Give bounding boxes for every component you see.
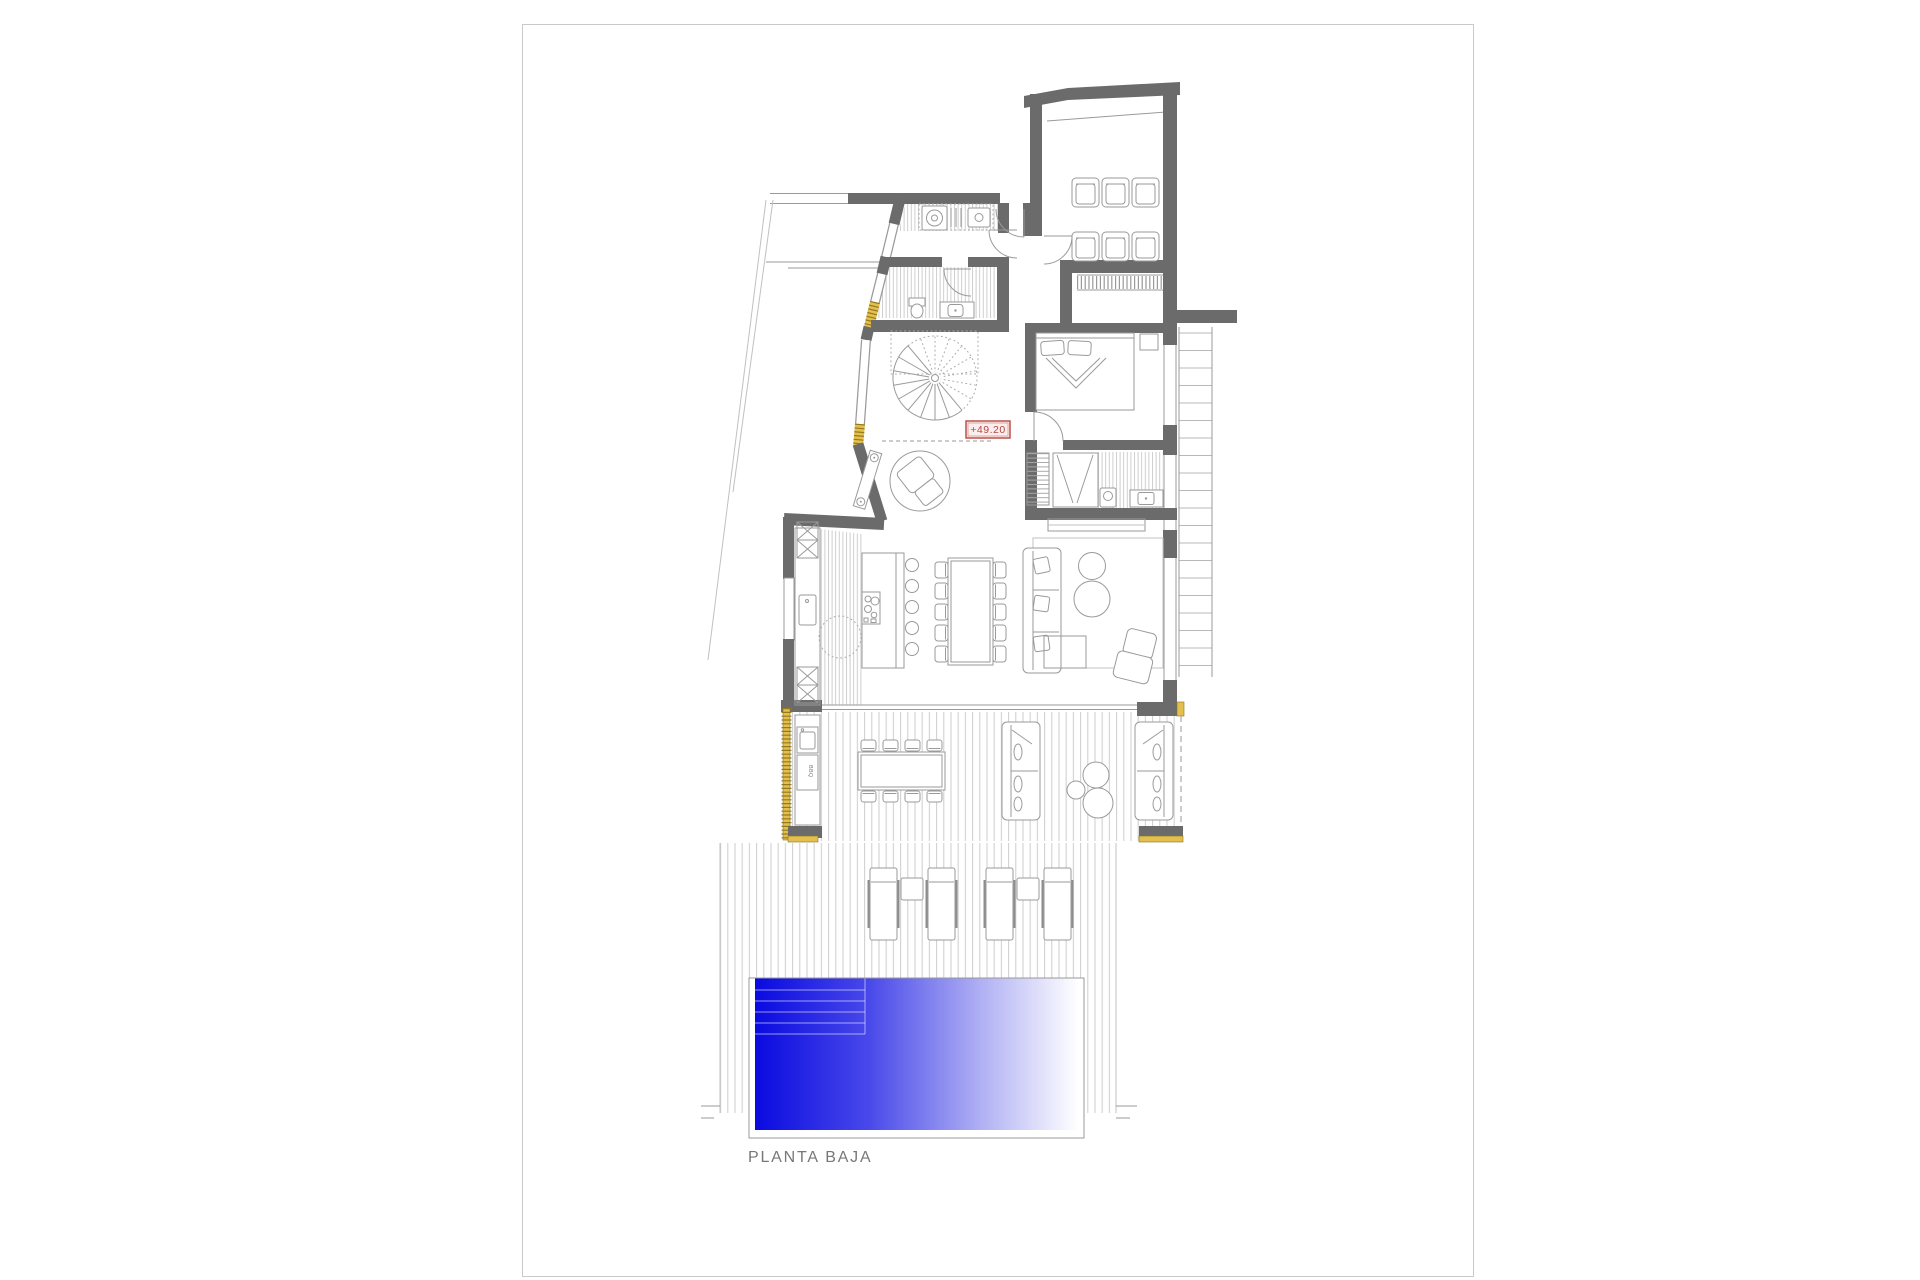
- laundry-door: [989, 230, 1017, 258]
- bbq-unit: BBQ: [797, 755, 818, 790]
- vanity-sink-icon: [940, 302, 974, 318]
- terrace-decking: [790, 712, 1177, 841]
- dining-table: [948, 558, 993, 665]
- lounge-chair-icon: [896, 455, 947, 508]
- side-table-round: [1083, 762, 1109, 788]
- floor-plan-canvas: BBQ: [0, 0, 1920, 1280]
- plot-boundary-line: [733, 200, 773, 492]
- sun-lounger: [985, 868, 1015, 940]
- nightstand: [1140, 334, 1158, 350]
- exterior-steps: [1179, 327, 1212, 677]
- bedroom: [1036, 333, 1158, 410]
- sofa: [1023, 548, 1061, 673]
- laundry-sink-icon: [968, 208, 990, 227]
- side-table-round: [1067, 781, 1085, 799]
- bar-stools: [906, 559, 919, 656]
- outdoor-sofa: [1002, 722, 1040, 820]
- lounger-table: [901, 878, 923, 900]
- reading-corner: [890, 451, 950, 511]
- bathroom-floor: [875, 267, 997, 318]
- sitting-room: [1072, 178, 1159, 261]
- living-room: [1023, 519, 1163, 685]
- dining-area: [935, 558, 1006, 665]
- side-table-round: [1083, 788, 1113, 818]
- vanity-sink-icon: [1130, 490, 1163, 507]
- sun-lounger: [927, 868, 957, 940]
- swimming-pool: [749, 978, 1084, 1138]
- outdoor-sink-icon: [797, 727, 818, 753]
- outdoor-table: [858, 752, 945, 790]
- kitchen-sink-icon: [799, 595, 816, 625]
- linen-shelves: [1027, 453, 1049, 505]
- plot-boundary-line: [708, 200, 766, 660]
- coffee-table-round: [1074, 581, 1110, 617]
- level-marker: +49.20: [966, 421, 1010, 438]
- wardrobe: [1077, 275, 1163, 290]
- outdoor-sofa: [1135, 722, 1173, 820]
- bbq-label: BBQ: [807, 765, 813, 778]
- coffee-table-round: [1079, 553, 1106, 580]
- kitchen-island: [862, 553, 904, 668]
- shower: [1053, 453, 1098, 507]
- outdoor-kitchen: BBQ: [795, 715, 820, 825]
- toilet-icon: [1100, 488, 1116, 507]
- lounger-table: [1017, 878, 1039, 900]
- armchair-icon: [1112, 627, 1159, 685]
- level-marker-value: +49.20: [970, 424, 1005, 436]
- bed: [1036, 333, 1134, 410]
- sun-lounger: [1043, 868, 1073, 940]
- plan-title: PLANTA BAJA: [748, 1149, 872, 1166]
- sitting-room-door: [1044, 236, 1072, 264]
- bedroom-door: [1034, 412, 1063, 441]
- floor-plan-drawing: BBQ: [0, 0, 1920, 1280]
- kitchen-floor: [820, 529, 862, 705]
- sun-lounger: [869, 868, 899, 940]
- washing-machine-icon: [922, 206, 947, 230]
- east-wall-stub: [1177, 310, 1237, 323]
